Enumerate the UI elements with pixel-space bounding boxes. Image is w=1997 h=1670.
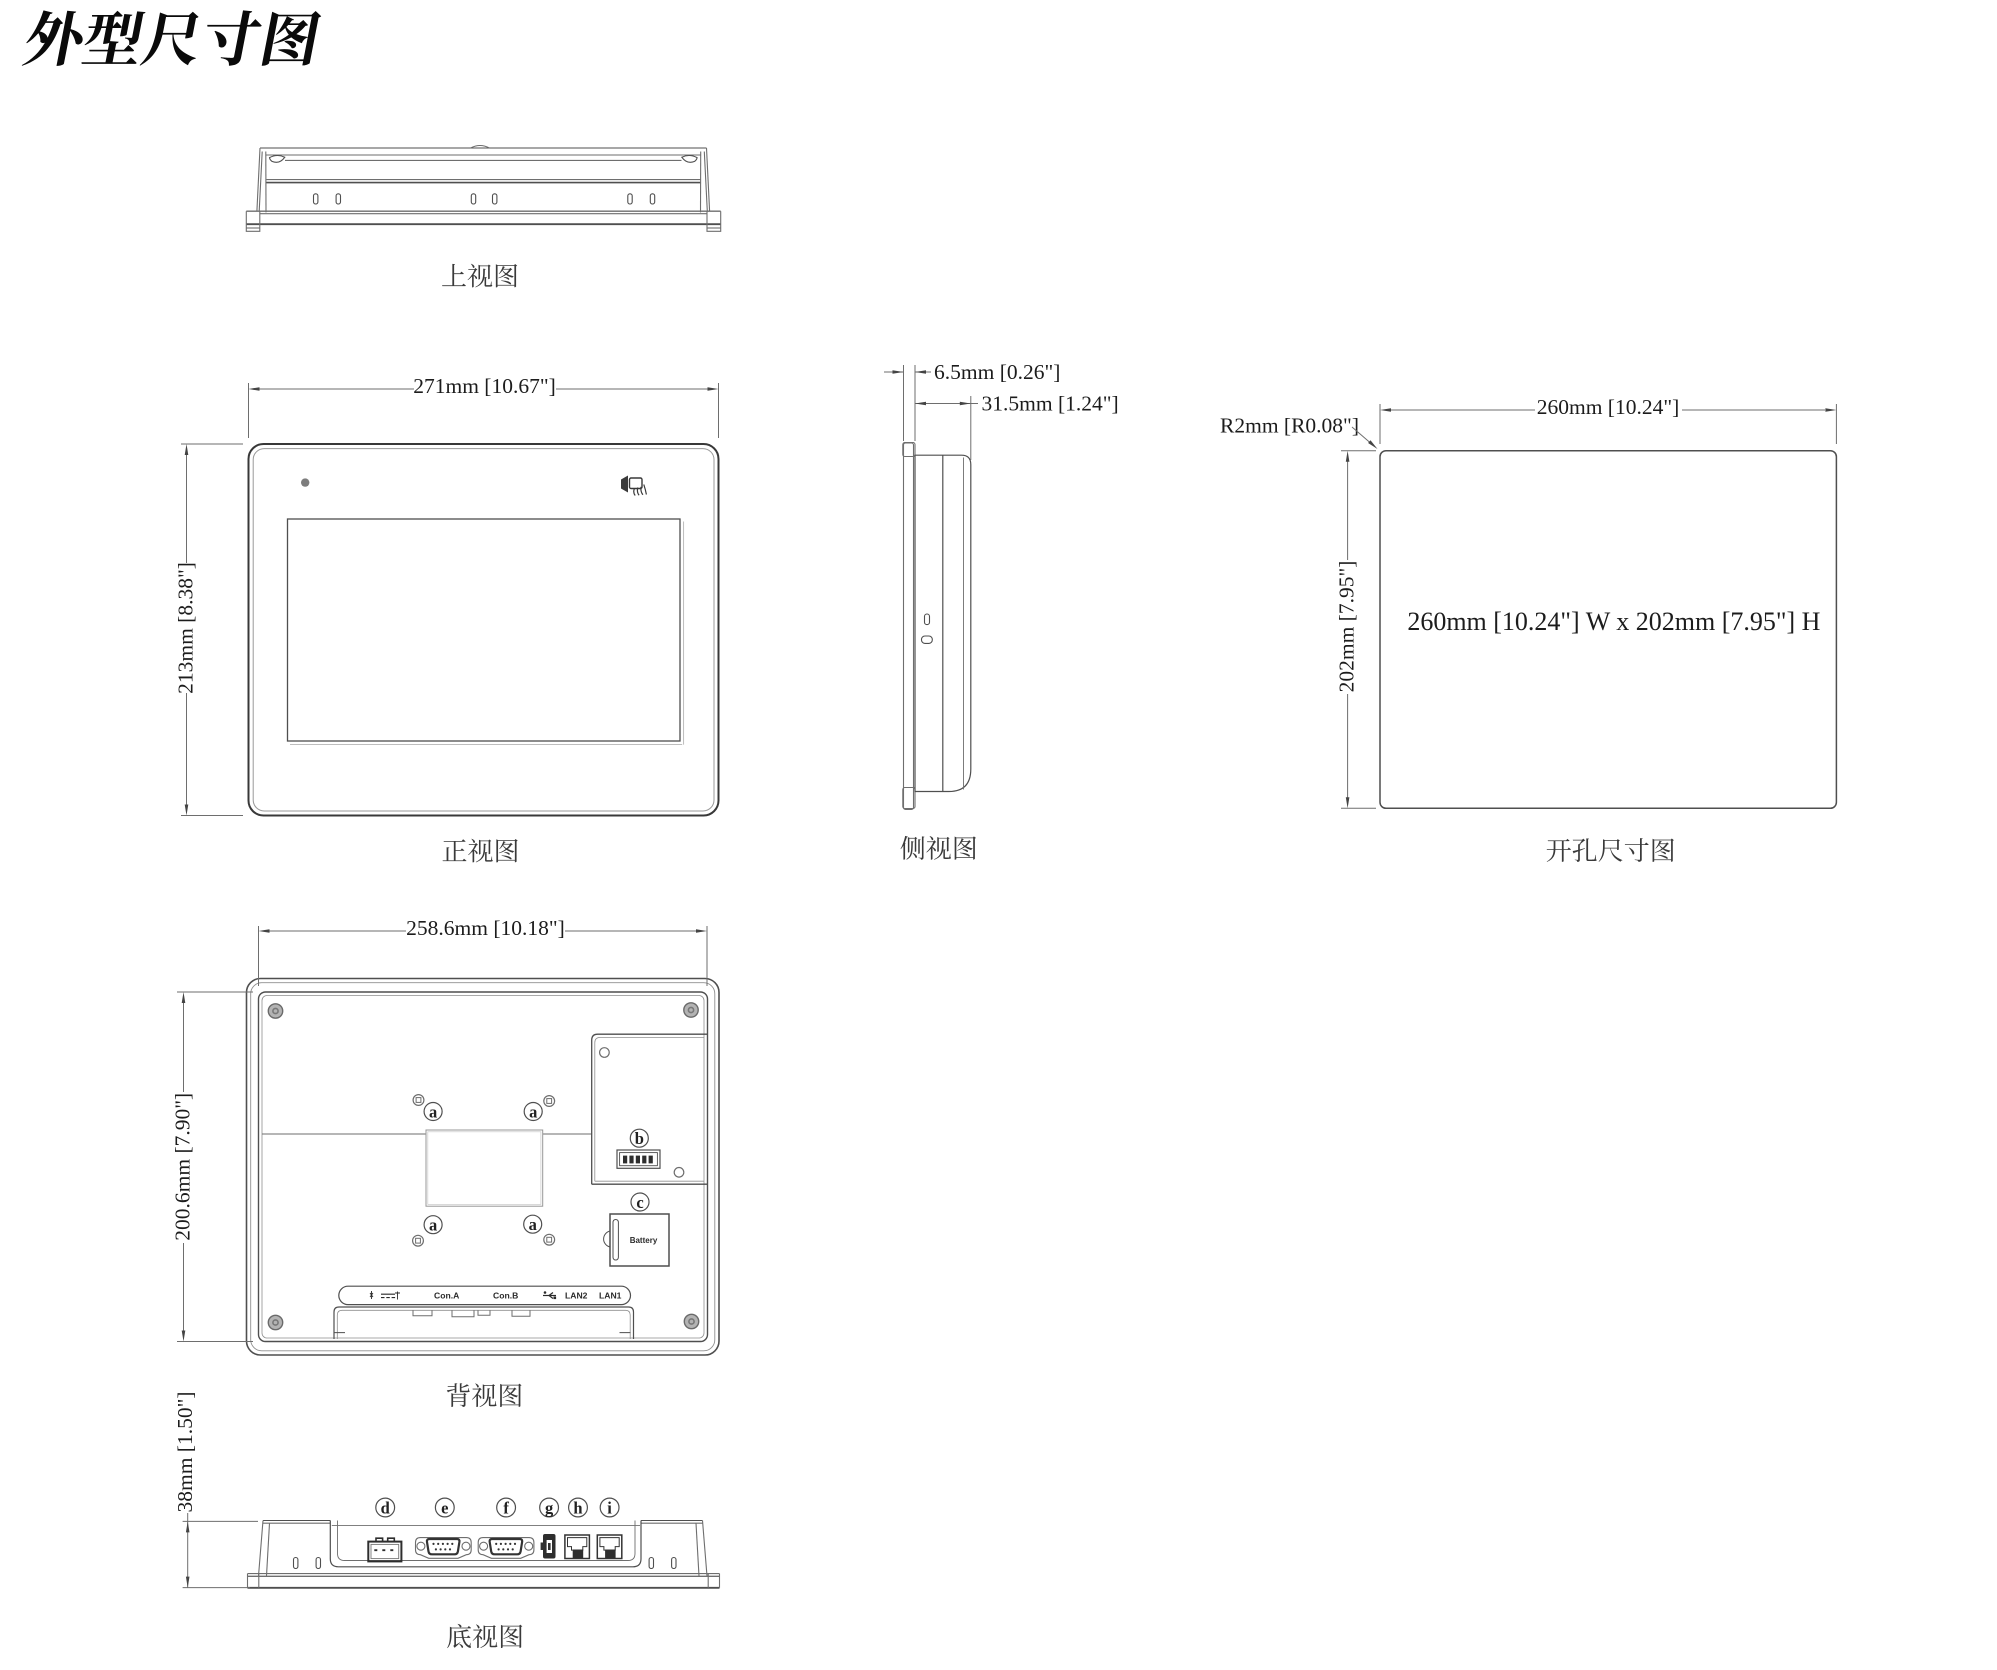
svg-text:b: b xyxy=(635,1129,644,1148)
svg-text:g: g xyxy=(545,1498,554,1517)
svg-text:6.5mm [0.26"]: 6.5mm [0.26"] xyxy=(934,360,1060,384)
svg-text:260mm [10.24"]: 260mm [10.24"] xyxy=(1537,395,1680,419)
svg-text:LAN2: LAN2 xyxy=(565,1291,588,1301)
svg-text:200.6mm [7.90"]: 200.6mm [7.90"] xyxy=(170,1093,194,1241)
svg-text:Con.B: Con.B xyxy=(493,1291,518,1301)
svg-text:LAN1: LAN1 xyxy=(599,1291,622,1301)
svg-text:f: f xyxy=(503,1498,509,1517)
svg-text:a: a xyxy=(529,1215,537,1234)
svg-text:R2mm [R0.08"]: R2mm [R0.08"] xyxy=(1220,414,1359,438)
svg-text:a: a xyxy=(429,1102,437,1121)
svg-text:e: e xyxy=(441,1498,448,1517)
svg-text:31.5mm [1.24"]: 31.5mm [1.24"] xyxy=(982,392,1119,416)
svg-text:i: i xyxy=(607,1498,612,1517)
svg-text:213mm [8.38"]: 213mm [8.38"] xyxy=(173,562,197,694)
svg-text:h: h xyxy=(573,1498,582,1517)
svg-text:271mm [10.67"]: 271mm [10.67"] xyxy=(413,374,556,398)
svg-text:d: d xyxy=(381,1498,390,1517)
svg-text:Con.A: Con.A xyxy=(434,1291,459,1301)
svg-text:260mm [10.24"] W x 202mm [7.95: 260mm [10.24"] W x 202mm [7.95"] H xyxy=(1407,607,1820,636)
svg-text:Battery: Battery xyxy=(630,1236,658,1245)
svg-text:a: a xyxy=(529,1102,537,1121)
svg-text:258.6mm [10.18"]: 258.6mm [10.18"] xyxy=(406,916,565,940)
svg-text:a: a xyxy=(429,1216,437,1235)
svg-text:38mm [1.50"]: 38mm [1.50"] xyxy=(173,1391,197,1512)
svg-text:202mm [7.95"]: 202mm [7.95"] xyxy=(1334,561,1358,693)
svg-text:c: c xyxy=(636,1193,643,1212)
